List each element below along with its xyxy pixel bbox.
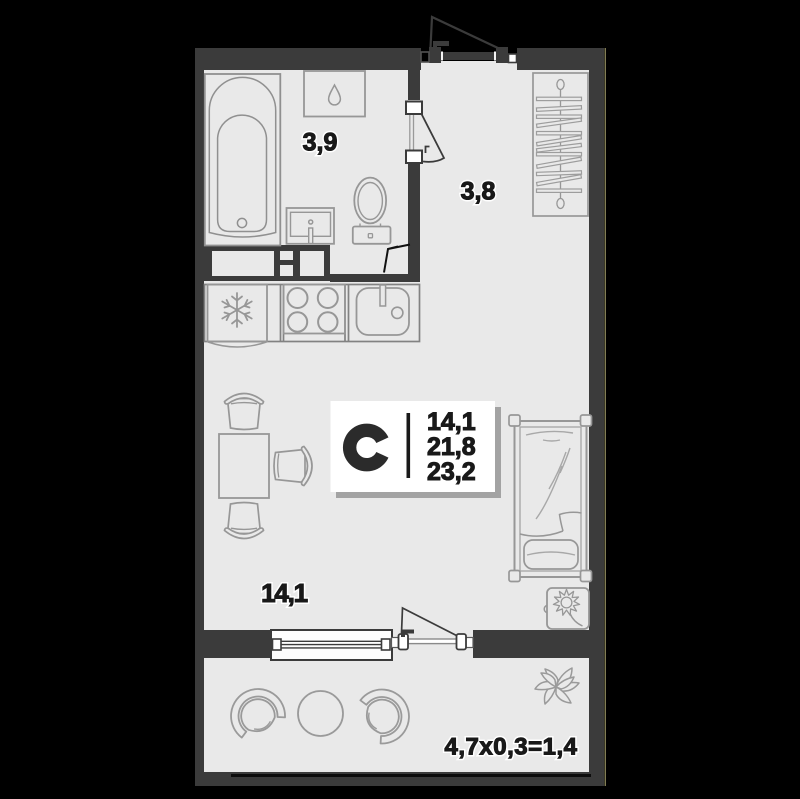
svg-text:3,8: 3,8	[461, 178, 496, 206]
svg-text:3,9: 3,9	[303, 129, 338, 157]
svg-text:23,2: 23,2	[427, 458, 476, 486]
svg-text:21,8: 21,8	[427, 433, 476, 461]
svg-text:14,1: 14,1	[261, 578, 308, 608]
svg-text:4,7x0,3=1,4: 4,7x0,3=1,4	[445, 734, 578, 761]
svg-text:14,1: 14,1	[427, 408, 476, 436]
